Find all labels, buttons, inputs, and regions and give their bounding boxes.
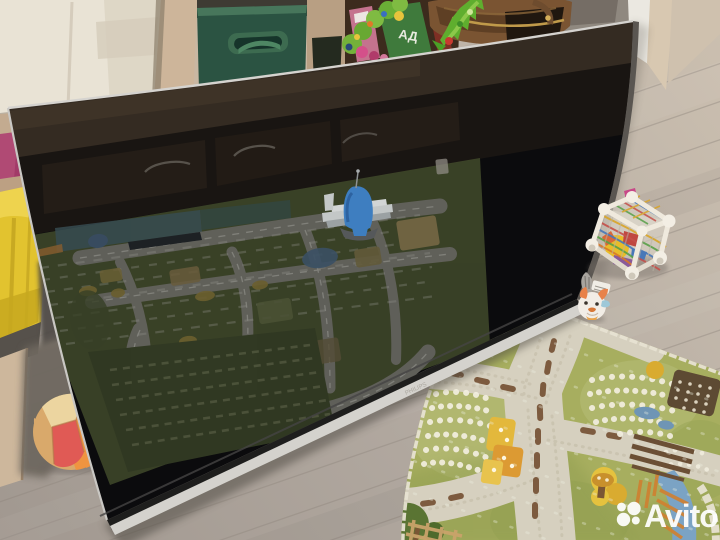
svg-text:Avito: Avito — [644, 498, 718, 534]
